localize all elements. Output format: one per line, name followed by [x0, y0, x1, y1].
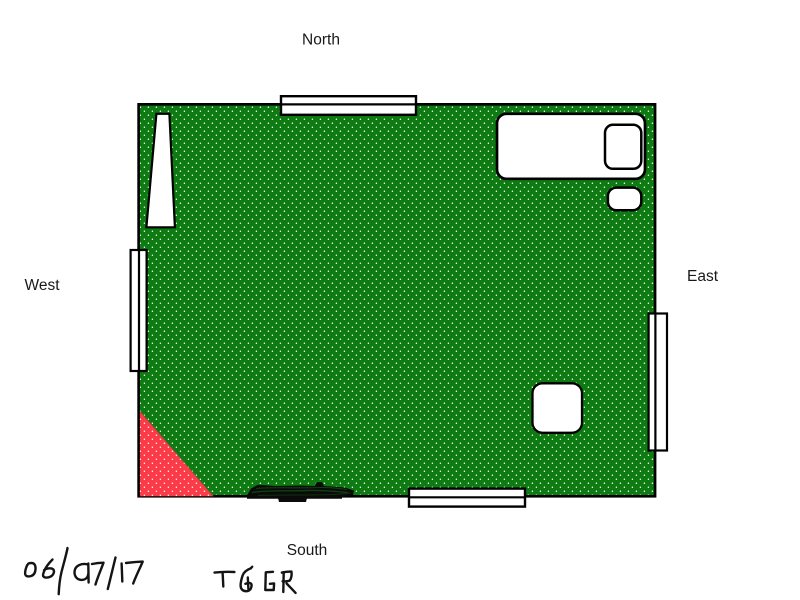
svg-text:East: East — [687, 268, 719, 285]
svg-text:North: North — [302, 32, 340, 49]
svg-text:West: West — [24, 277, 60, 294]
svg-text:South: South — [287, 542, 328, 559]
